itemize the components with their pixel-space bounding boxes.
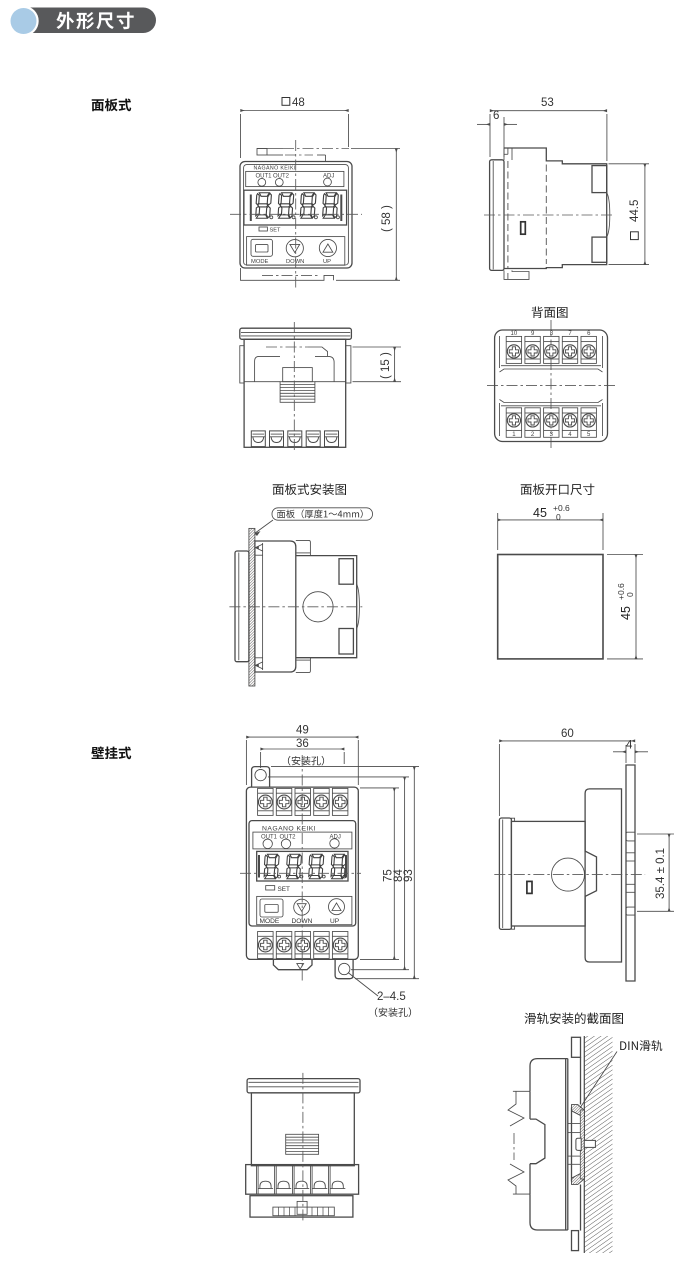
svg-text:( 58 ): ( 58 ) [381,205,393,232]
svg-text:36: 36 [296,738,309,750]
svg-text:NAGANO KEIKI: NAGANO KEIKI [262,826,316,833]
svg-text:45: 45 [619,606,633,620]
svg-text:49: 49 [296,725,309,737]
svg-text:ADJ: ADJ [330,834,341,840]
svg-text:SET: SET [270,228,281,234]
svg-text:60: 60 [561,728,574,740]
svg-text:10: 10 [511,331,518,337]
svg-text:0: 0 [556,512,561,522]
svg-text:44.5: 44.5 [629,200,641,222]
svg-text:45: 45 [533,506,547,520]
svg-text:NAGANO KEIKI: NAGANO KEIKI [254,166,296,172]
svg-text:93: 93 [403,869,415,882]
svg-text:MODE: MODE [260,918,280,925]
svg-text:SET: SET [278,886,291,893]
svg-text:DOWN: DOWN [286,259,304,265]
svg-text:6: 6 [493,110,499,122]
svg-text:2–4.5: 2–4.5 [377,991,406,1003]
svg-text:4: 4 [626,740,633,752]
svg-text:35.4 ± 0.1: 35.4 ± 0.1 [655,848,667,899]
svg-text:( 15 ): ( 15 ) [380,352,392,379]
svg-text:0: 0 [625,592,635,597]
svg-text:48: 48 [292,97,305,109]
svg-text:53: 53 [541,97,554,109]
svg-text:MODE: MODE [251,259,269,265]
svg-text:UP: UP [323,259,331,265]
svg-text:UP: UP [330,918,340,925]
